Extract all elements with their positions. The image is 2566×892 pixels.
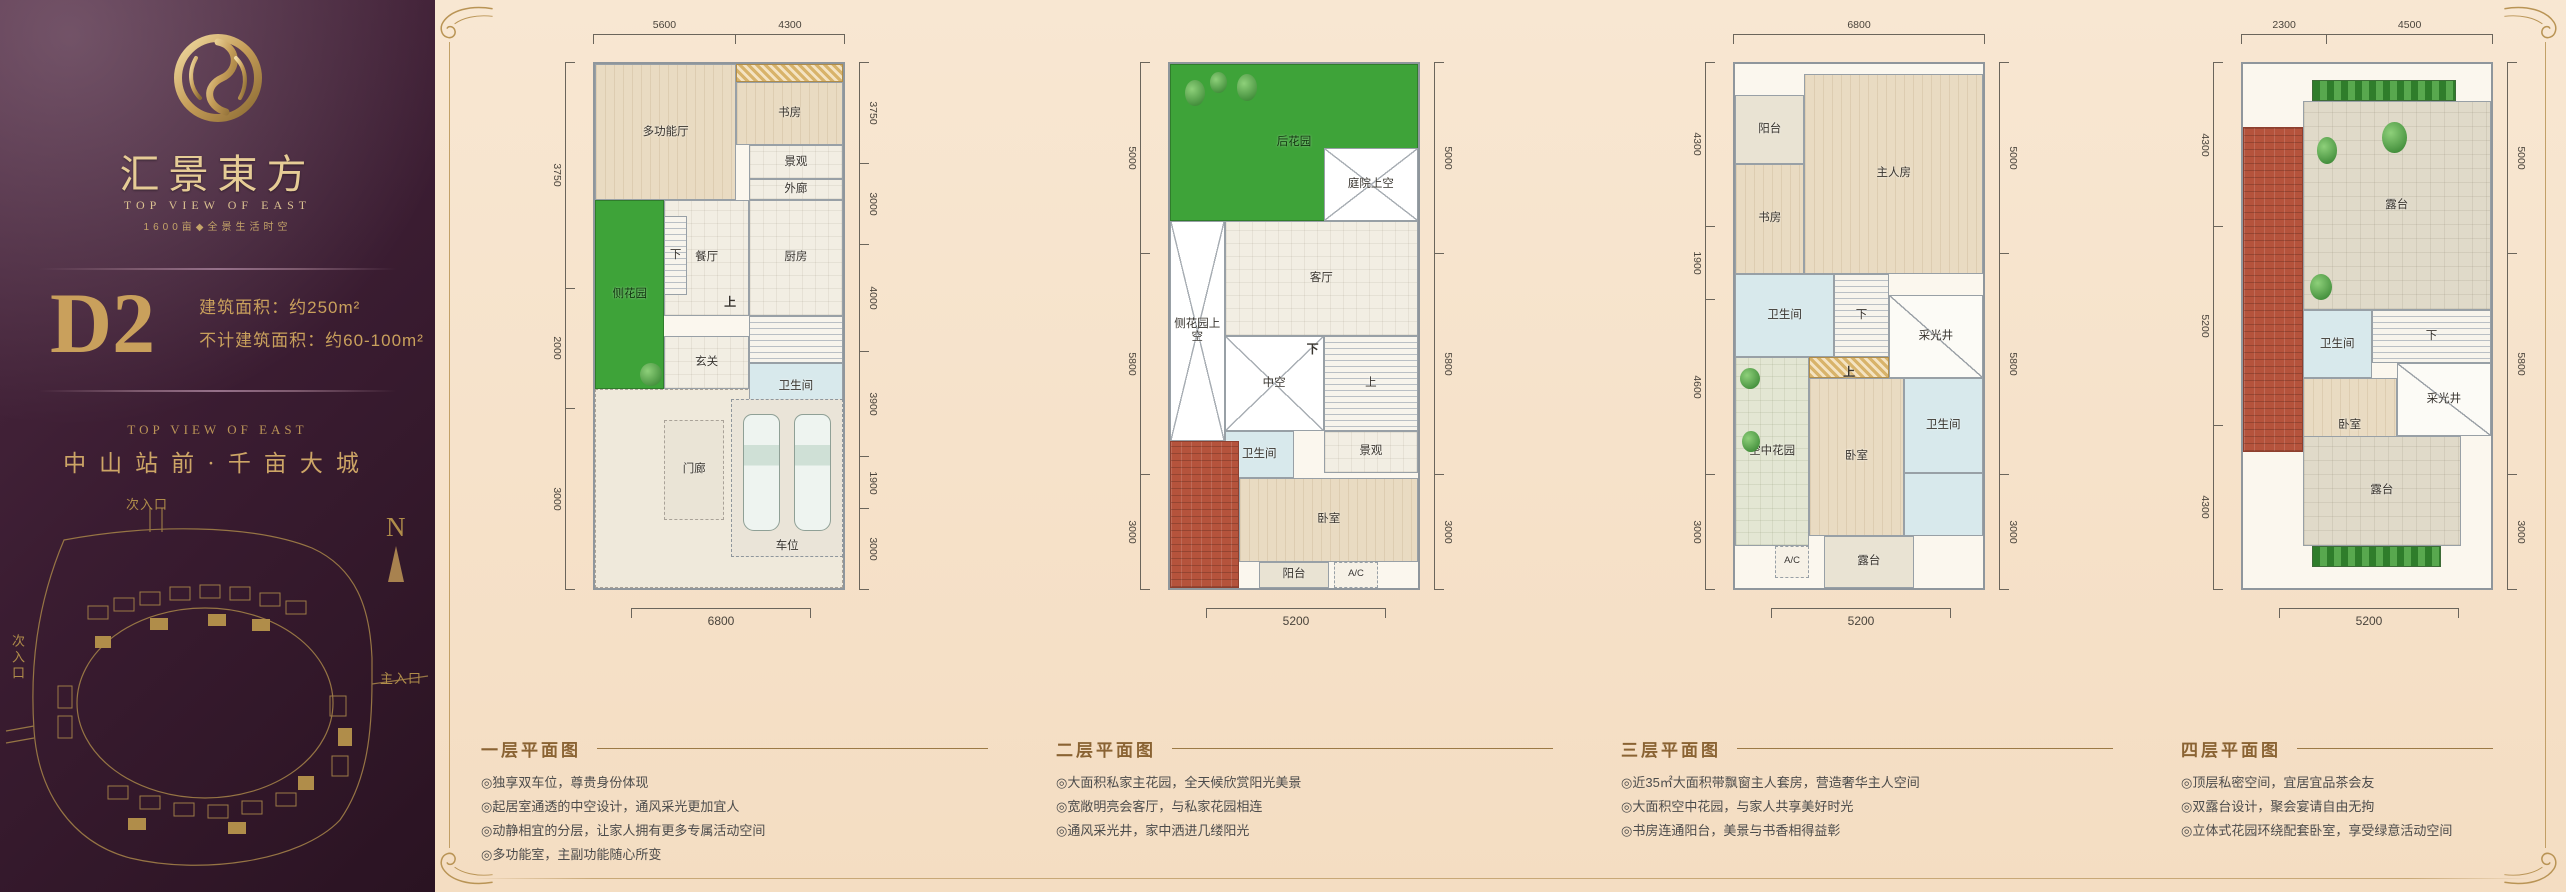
dimension-label: 5800 [2515, 352, 2527, 375]
room-label: 上 [1364, 377, 1378, 390]
room-porch: 门廊 [664, 420, 724, 520]
dimension-label: 5800 [1442, 352, 1454, 375]
room-label: 景观 [783, 156, 808, 169]
dim-rail-right: 375030004000390019003000 [859, 62, 870, 590]
room-label: 门廊 [682, 463, 707, 476]
room-shower [1904, 473, 1983, 536]
caption-rule [2297, 748, 2493, 749]
map-entry-main: 主入口 [380, 668, 422, 687]
room-roof [1170, 441, 1239, 588]
caption-rule [597, 748, 988, 749]
room-label: 采光井 [1918, 330, 1955, 343]
dimension-label: 3000 [867, 537, 879, 560]
room-label: 卫生间 [778, 380, 815, 393]
room-label: 下 [2425, 330, 2439, 343]
plan-title: 二层平面图 [1056, 736, 1156, 761]
plan-bullet: ◎多功能室，主副功能随心所变 [481, 843, 1006, 867]
plan-title: 一层平面图 [481, 736, 581, 761]
room-courtyard-void: 庭院上空 [1324, 148, 1418, 221]
plan-box: 多功能厅书房景观外廊侧花园餐厅厨房下上玄关卫生间门廊车位 [593, 62, 845, 590]
floorplan-row: 56004300 375020003000 375030004000390019… [459, 8, 2546, 867]
dim-rail-bottom: 5200 [1206, 608, 1386, 619]
dim-rail-top: 23004500 [2241, 34, 2493, 45]
room-multi-function-hall: 多功能厅 [595, 64, 736, 200]
plan-bullet: ◎动静相宜的分层，让家人拥有更多专属活动空间 [481, 819, 1006, 843]
dimension-label: 6800 [708, 614, 735, 628]
room-bathroom: 卫生间 [2303, 310, 2372, 378]
room-stairwell [749, 316, 843, 363]
logo [0, 26, 435, 134]
dimension-label: 4300 [2199, 133, 2211, 156]
dimension-label: 2300 [2272, 19, 2295, 31]
plan-caption: 二层平面图 ◎大面积私家主花园，全天候欣赏阳光美景◎宽敞明亮会客厅，与私家花园相… [1056, 736, 1571, 843]
room-label: 中空 [1262, 377, 1287, 390]
room-label: 玄关 [694, 356, 719, 369]
room-kitchen: 厨房 [749, 200, 843, 315]
plan-bullets: ◎大面积私家主花园，全天候欣赏阳光美景◎宽敞明亮会客厅，与私家花园相连◎通风采光… [1056, 771, 1571, 843]
room-label: 侧花园上空 [1171, 318, 1224, 344]
plan-bullet: ◎近35㎡大面积带飘窗主人套房，营造奢华主人空间 [1621, 771, 2131, 795]
room-label: 卫生间 [2319, 338, 2356, 351]
room-label: 采光井 [2426, 393, 2463, 406]
room-stairwell: 下 [2372, 310, 2491, 362]
room-label: 下 [669, 249, 683, 262]
floorplan-figure: 56004300 375020003000 375030004000390019… [545, 8, 885, 710]
room-terrace: 露台 [1824, 536, 1913, 588]
room-label: 阳台 [1281, 568, 1306, 581]
plan-bullet: ◎大面积私家主花园，全天候欣赏阳光美景 [1056, 771, 1571, 795]
room-tree [1742, 431, 1759, 452]
site-map: 次入口 次入口 主入口 N [0, 488, 435, 892]
caption-rule [1172, 748, 1553, 749]
dimension-label: 5200 [1848, 614, 1875, 628]
floorplan-figure: 6800 4300190046003000 500058003000 5200 … [1685, 8, 2025, 710]
unit-area-built: 建筑面积：约250m² [199, 293, 424, 318]
plan-bullets: ◎独享双车位，尊贵身份体现◎起居室通透的中空设计，通风采光更加宜人◎动静相宜的分… [481, 771, 1006, 867]
room-foyer: 玄关 [664, 336, 748, 388]
dim-rail-bottom: 6800 [631, 608, 811, 619]
room-up-label: 上 [1839, 363, 1859, 384]
plan-bullets: ◎近35㎡大面积带飘窗主人套房，营造奢华主人空间◎大面积空中花园，与家人共享美好… [1621, 771, 2131, 843]
room-label: 客厅 [1309, 272, 1334, 285]
unit-code: D2 [50, 284, 155, 363]
room-bedroom: 卧室 [1239, 478, 1418, 562]
plan-bullet: ◎独享双车位，尊贵身份体现 [481, 771, 1006, 795]
room-label: 厨房 [783, 251, 808, 264]
dimension-label: 5000 [1126, 146, 1138, 169]
room-side-garden: 侧花园 [595, 200, 664, 389]
room-tree [640, 363, 662, 387]
dimension-label: 3750 [551, 164, 563, 187]
dimension-label: 4300 [778, 19, 801, 31]
floorplan-column-3: 6800 4300190046003000 500058003000 5200 … [1599, 8, 2159, 867]
room-parking: 车位 [731, 399, 843, 556]
dim-rail-left: 375020003000 [565, 62, 576, 590]
room-study: 书房 [736, 82, 843, 145]
floorplans-panel: 56004300 375020003000 375030004000390019… [435, 0, 2566, 892]
unit-area-extra: 不计建筑面积：约60-100m² [199, 326, 424, 351]
room-up-label: 上 [719, 289, 741, 315]
divider [39, 390, 396, 392]
room-trellis [736, 64, 843, 82]
dimension-label: 4600 [1691, 375, 1703, 398]
room-label: 卫生间 [1925, 419, 1962, 432]
floorplan-figure: 23004500 430052004300 500058003000 5200 … [2193, 8, 2533, 710]
room-tree [2382, 122, 2407, 153]
room-study: 书房 [1735, 164, 1804, 274]
room-label: 多功能厅 [642, 126, 690, 139]
caption-header: 四层平面图 [2181, 736, 2511, 761]
dimension-label: 5000 [1442, 146, 1454, 169]
room-tree [1740, 368, 1760, 389]
dimension-label: 3000 [1691, 520, 1703, 543]
room-label: 庭院上空 [1347, 178, 1395, 191]
room-tree [2317, 137, 2337, 163]
frame-line-bottom [469, 878, 2532, 879]
room-stairwell: 上 [1324, 336, 1418, 430]
room-label: 书房 [777, 107, 802, 120]
slogan-cn: 中山站前·千亩大城 [0, 444, 435, 478]
room-label: 卧室 [1844, 450, 1869, 463]
site-map-roads [0, 488, 435, 892]
dim-rail-left: 430052004300 [2213, 62, 2224, 590]
plan-bullet: ◎宽敞明亮会客厅，与私家花园相连 [1056, 795, 1571, 819]
room-ac-unit: A/C [1334, 562, 1379, 588]
caption-header: 三层平面图 [1621, 736, 2131, 761]
car-left-icon [743, 414, 780, 531]
dim-rail-bottom: 5200 [2279, 608, 2459, 619]
dimension-label: 5800 [2007, 352, 2019, 375]
frame-line-left [449, 42, 450, 848]
room-terrace-bottom: 露台 [2303, 436, 2462, 546]
room-label: 车位 [732, 540, 842, 553]
room-bathroom-upper: 卫生间 [1735, 274, 1834, 358]
room-stairwell: 下 [1834, 274, 1889, 358]
room-label: 餐厅 [694, 251, 719, 264]
room-balcony: 阳台 [1735, 95, 1804, 163]
room-balcony: 阳台 [1259, 562, 1328, 588]
dim-rail-bottom: 5200 [1771, 608, 1951, 619]
north-arrow-icon [388, 546, 404, 582]
room-label: 上 [1842, 366, 1856, 380]
dimension-label: 1900 [1691, 251, 1703, 274]
room-landscape: 景观 [749, 145, 843, 179]
dim-rail-left: 4300190046003000 [1705, 62, 1716, 590]
room-label: 露台 [2384, 199, 2409, 212]
dimension-label: 4300 [1691, 133, 1703, 156]
room-label: A/C [1783, 556, 1801, 567]
dimension-label: 3000 [867, 192, 879, 215]
plan-box: 后花园庭院上空侧花园上空客厅中空上下卫生间景观卧室阳台A/C [1168, 62, 1420, 590]
brochure-page: { "sidebar": { "brand_cn": "汇景東方", "bran… [0, 0, 2566, 892]
plan-bullet: ◎通风采光井，家中洒进几缕阳光 [1056, 819, 1571, 843]
plan-caption: 四层平面图 ◎顶层私密空间，宜居宜品茶会友◎双露台设计，聚会宴请自由无拘◎立体式… [2181, 736, 2511, 843]
caption-header: 二层平面图 [1056, 736, 1571, 761]
room-label: 卫生间 [1766, 309, 1803, 322]
room-bathroom-lower: 卫生间 [1904, 378, 1983, 472]
divider [39, 268, 396, 270]
room-label: 下 [1855, 309, 1869, 322]
room-down-label: 下 [1301, 336, 1323, 362]
room-label: 下 [1306, 343, 1320, 357]
room-label: 后花园 [1276, 136, 1313, 149]
dimension-label: 3000 [2007, 520, 2019, 543]
dimension-label: 3000 [1126, 520, 1138, 543]
room-label: 景观 [1358, 445, 1383, 458]
room-ac-unit: A/C [1775, 546, 1810, 577]
dimension-label: 5000 [2515, 146, 2527, 169]
dimension-label: 1900 [867, 471, 879, 494]
dimension-label: 4500 [2398, 19, 2421, 31]
plan-bullet: ◎书房连通阳台，美景与书香相得益彰 [1621, 819, 2131, 843]
dimension-label: 5600 [653, 19, 676, 31]
brand-name-en: TOP VIEW OF EAST [0, 198, 435, 213]
dim-rail-right: 500058003000 [1999, 62, 2010, 590]
floorplan-column-1: 56004300 375020003000 375030004000390019… [459, 8, 1034, 867]
slash-divider [159, 289, 187, 359]
room-label: 外廊 [783, 183, 808, 196]
plan-bullets: ◎顶层私密空间，宜居宜品茶会友◎双露台设计，聚会宴请自由无拘◎立体式花园环绕配套… [2181, 771, 2511, 843]
unit-areas: 建筑面积：约250m² 不计建筑面积：约60-100m² [199, 284, 424, 363]
plan-bullet: ◎大面积空中花园，与家人共享美好时光 [1621, 795, 2131, 819]
room-landscape: 景观 [1324, 431, 1418, 473]
dimension-label: 3000 [2515, 520, 2527, 543]
room-side-garden-void: 侧花园上空 [1170, 221, 1225, 441]
plan-caption: 三层平面图 ◎近35㎡大面积带飘窗主人套房，营造奢华主人空间◎大面积空中花园，与… [1621, 736, 2131, 843]
dimension-label: 4300 [2199, 496, 2211, 519]
brand-sidebar: 汇景東方 TOP VIEW OF EAST 1600亩◆全景生活时空 D2 建筑… [0, 0, 435, 892]
room-hedge-top [2312, 80, 2456, 101]
dim-rail-right: 500058003000 [1434, 62, 1445, 590]
room-label: 卧室 [2337, 419, 2362, 432]
dimension-label: 3900 [867, 393, 879, 416]
brand-tagline: 1600亩◆全景生活时空 [0, 218, 435, 233]
north-indicator: N [386, 514, 406, 582]
slogan-en: TOP VIEW OF EAST [0, 422, 435, 438]
dimension-label: 5000 [2007, 146, 2019, 169]
dimension-label: 5800 [1126, 352, 1138, 375]
room-label: 侧花园 [611, 288, 648, 301]
plan-box: 露台卫生间下采光井卧室露台 [2241, 62, 2493, 590]
room-tree [1237, 74, 1257, 100]
caption-header: 一层平面图 [481, 736, 1006, 761]
dimension-label: 3000 [1442, 520, 1454, 543]
dimension-label: 6800 [1847, 19, 1870, 31]
dim-rail-left: 500058003000 [1140, 62, 1151, 590]
room-roof [2243, 127, 2303, 452]
floorplan-column-4: 23004500 430052004300 500058003000 5200 … [2159, 8, 2539, 867]
dimension-label: 5200 [1283, 614, 1310, 628]
room-tree [2310, 274, 2332, 300]
room-label: 阳台 [1757, 123, 1782, 136]
north-label: N [386, 514, 406, 541]
room-label: A/C [1347, 569, 1365, 580]
room-lightwell: 采光井 [1889, 295, 1983, 379]
room-bedroom: 卧室 [1809, 378, 1903, 535]
room-label: 主人房 [1875, 167, 1912, 180]
room-label: 卧室 [1316, 513, 1341, 526]
plan-box: 阳台主人房书房卫生间下采光井空中花园卧室卫生间上A/C露台 [1733, 62, 1985, 590]
map-entry-secondary-top: 次入口 [126, 494, 168, 513]
plan-bullet: ◎顶层私密空间，宜居宜品茶会友 [2181, 771, 2511, 795]
plan-caption: 一层平面图 ◎独享双车位，尊贵身份体现◎起居室通透的中空设计，通风采光更加宜人◎… [481, 736, 1006, 867]
room-label: 露台 [2369, 484, 2394, 497]
phoenix-logo-icon [168, 26, 268, 134]
room-master-bedroom: 主人房 [1804, 74, 1983, 273]
room-label: 露台 [1856, 555, 1881, 568]
dim-rail-top: 56004300 [593, 34, 845, 45]
plan-bullet: ◎起居室通透的中空设计，通风采光更加宜人 [481, 795, 1006, 819]
floorplan-figure: 500058003000 500058003000 5200 后花园庭院上空侧花… [1120, 8, 1460, 710]
plan-title: 三层平面图 [1621, 736, 1721, 761]
room-living-room: 客厅 [1225, 221, 1418, 336]
unit-summary: D2 建筑面积：约250m² 不计建筑面积：约60-100m² [50, 284, 411, 363]
caption-rule [1737, 748, 2113, 749]
brand-name-cn: 汇景東方 [0, 142, 435, 200]
room-tree [1185, 80, 1205, 106]
map-entry-secondary-left: 次入口 [8, 634, 27, 682]
dimension-label: 3000 [551, 487, 563, 510]
room-label: 卫生间 [1241, 448, 1278, 461]
room-stair-down: 下 [664, 216, 686, 295]
room-label: 上 [723, 296, 737, 310]
plan-title: 四层平面图 [2181, 736, 2281, 761]
dimension-label: 5200 [2199, 314, 2211, 337]
room-lightwell: 采光井 [2397, 363, 2491, 436]
dim-rail-right: 500058003000 [2507, 62, 2518, 590]
floorplan-column-2: 500058003000 500058003000 5200 后花园庭院上空侧花… [1034, 8, 1599, 867]
car-right-icon [794, 414, 831, 531]
room-tree [1210, 72, 1227, 93]
room-outer-corridor: 外廊 [749, 179, 843, 200]
dimension-label: 3750 [867, 101, 879, 124]
dimension-label: 5200 [2356, 614, 2383, 628]
room-hedge-bottom [2312, 546, 2441, 567]
plan-bullet: ◎立体式花园环绕配套卧室，享受绿意活动空间 [2181, 819, 2511, 843]
dim-rail-top: 6800 [1733, 34, 1985, 45]
dimension-label: 2000 [551, 337, 563, 360]
room-label: 书房 [1757, 212, 1782, 225]
dimension-label: 4000 [867, 287, 879, 310]
plan-bullet: ◎双露台设计，聚会宴请自由无拘 [2181, 795, 2511, 819]
